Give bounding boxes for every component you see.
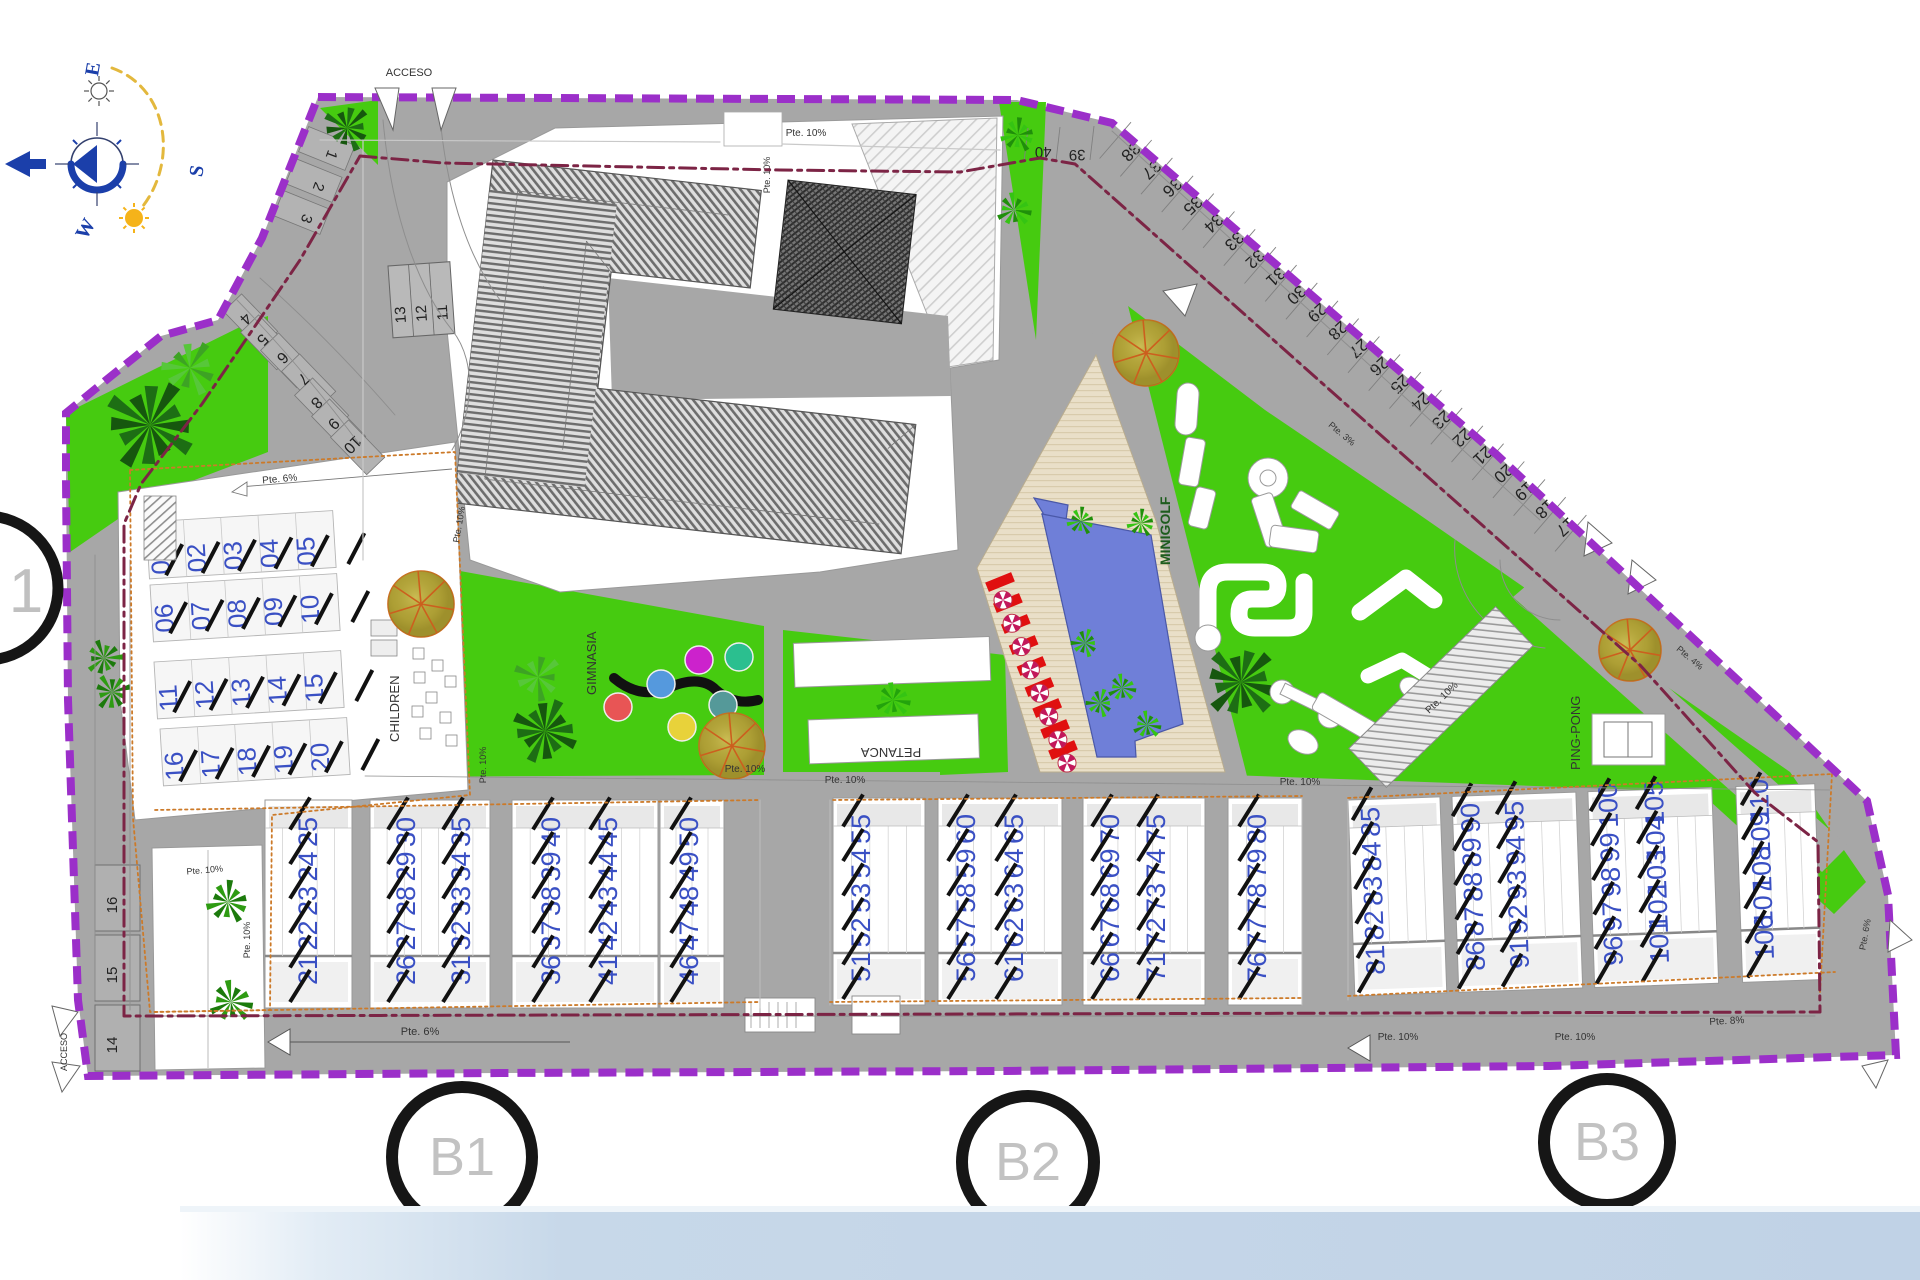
- svg-text:ACCESO: ACCESO: [59, 1033, 69, 1071]
- svg-text:MINIGOLF: MINIGOLF: [1157, 496, 1173, 565]
- svg-text:B1: B1: [429, 1127, 495, 1187]
- svg-text:15: 15: [298, 673, 330, 704]
- svg-text:13: 13: [392, 306, 410, 324]
- svg-text:Pte. 10%: Pte. 10%: [786, 128, 827, 139]
- svg-text:06: 06: [148, 603, 180, 634]
- svg-text:100: 100: [1593, 782, 1625, 828]
- svg-text:Pte. 10%: Pte. 10%: [478, 747, 488, 784]
- svg-text:02: 02: [181, 543, 213, 574]
- svg-text:Pte. 10%: Pte. 10%: [1378, 1032, 1419, 1043]
- svg-text:20: 20: [304, 742, 336, 773]
- svg-text:Pte. 8%: Pte. 8%: [1709, 1015, 1745, 1028]
- svg-text:12: 12: [189, 680, 221, 711]
- svg-text:13: 13: [225, 677, 257, 708]
- svg-text:18: 18: [231, 746, 263, 777]
- svg-text:07: 07: [185, 601, 217, 632]
- svg-text:04: 04: [254, 538, 286, 569]
- svg-text:PING-PONG: PING-PONG: [1568, 696, 1583, 770]
- svg-text:14: 14: [262, 675, 294, 706]
- svg-text:09: 09: [258, 596, 290, 627]
- svg-text:Pte. 10%: Pte. 10%: [762, 157, 772, 194]
- svg-text:12: 12: [413, 304, 431, 322]
- svg-text:GIMNASIA: GIMNASIA: [584, 631, 599, 695]
- svg-text:05: 05: [290, 536, 322, 567]
- svg-text:Pte. 10%: Pte. 10%: [1280, 777, 1321, 788]
- svg-text:16: 16: [104, 897, 121, 914]
- svg-text:14: 14: [104, 1037, 121, 1054]
- svg-text:Pte. 10%: Pte. 10%: [725, 764, 766, 775]
- svg-text:10: 10: [294, 594, 326, 625]
- svg-text:39: 39: [1069, 146, 1086, 164]
- svg-text:Pte. 10%: Pte. 10%: [825, 775, 866, 786]
- svg-text:16: 16: [158, 751, 190, 782]
- svg-text:105: 105: [1639, 780, 1671, 826]
- svg-text:1: 1: [9, 557, 43, 626]
- svg-text:03: 03: [217, 540, 249, 571]
- svg-text:15: 15: [104, 967, 121, 984]
- svg-text:08: 08: [221, 598, 253, 629]
- svg-text:17: 17: [195, 749, 227, 780]
- svg-text:Pte. 10%: Pte. 10%: [1555, 1032, 1596, 1043]
- svg-text:CHILDREN: CHILDREN: [387, 676, 402, 742]
- svg-text:PETANCA: PETANCA: [860, 745, 921, 760]
- svg-text:Pte. 10%: Pte. 10%: [242, 922, 252, 959]
- svg-text:B2: B2: [995, 1132, 1061, 1192]
- svg-text:B3: B3: [1574, 1112, 1640, 1172]
- svg-text:Pte. 6%: Pte. 6%: [401, 1026, 440, 1038]
- svg-text:19: 19: [268, 744, 300, 775]
- svg-text:ACCESO: ACCESO: [386, 67, 433, 79]
